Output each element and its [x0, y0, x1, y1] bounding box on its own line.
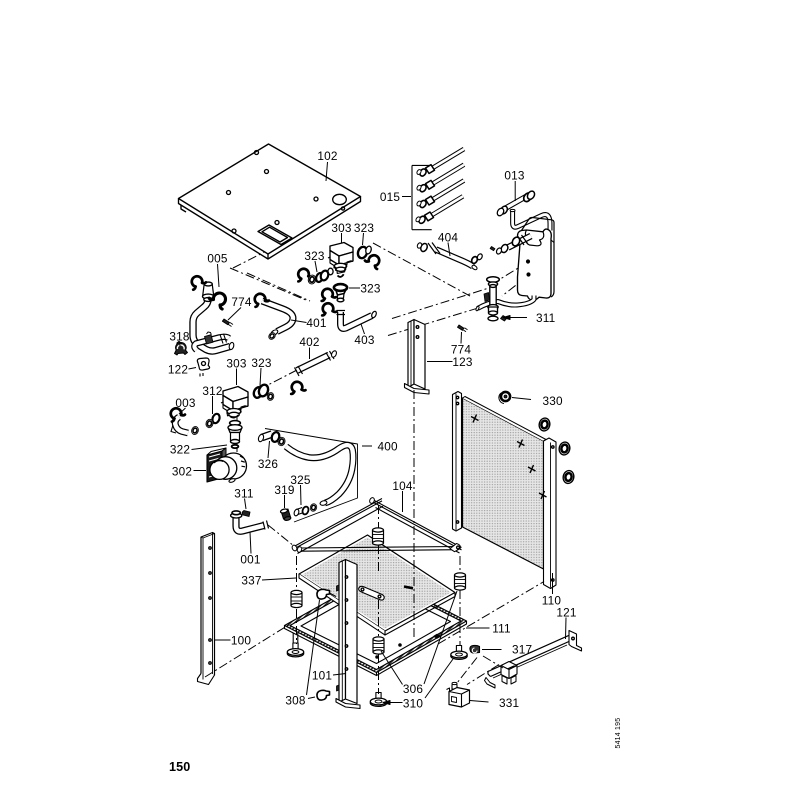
- svg-text:013: 013: [504, 169, 525, 183]
- svg-text:403: 403: [354, 333, 375, 347]
- svg-text:303: 303: [331, 221, 352, 235]
- svg-text:323: 323: [360, 282, 381, 296]
- svg-text:318: 318: [169, 330, 190, 344]
- svg-text:774: 774: [231, 295, 252, 309]
- svg-text:322: 322: [170, 443, 190, 457]
- svg-text:311: 311: [234, 487, 253, 501]
- svg-text:302: 302: [172, 465, 192, 479]
- svg-text:323: 323: [251, 356, 272, 370]
- svg-text:325: 325: [290, 473, 311, 487]
- svg-text:330: 330: [543, 394, 564, 408]
- svg-text:402: 402: [299, 335, 319, 349]
- svg-text:111: 111: [492, 622, 511, 636]
- svg-text:015: 015: [380, 190, 401, 204]
- svg-text:400: 400: [378, 440, 399, 454]
- svg-text:323: 323: [354, 221, 375, 235]
- svg-text:005: 005: [207, 252, 228, 266]
- svg-text:122: 122: [168, 363, 188, 377]
- svg-text:003: 003: [175, 396, 196, 410]
- svg-text:5414 195: 5414 195: [615, 718, 622, 749]
- svg-text:100: 100: [231, 634, 252, 648]
- svg-text:306: 306: [403, 682, 424, 696]
- svg-text:310: 310: [403, 697, 424, 711]
- svg-text:401: 401: [306, 316, 326, 330]
- svg-text:312: 312: [202, 384, 222, 398]
- svg-text:311: 311: [536, 311, 555, 325]
- svg-text:101: 101: [312, 669, 332, 683]
- svg-text:001: 001: [240, 553, 260, 567]
- svg-text:121: 121: [556, 606, 576, 620]
- svg-text:303: 303: [226, 357, 247, 371]
- svg-text:331: 331: [499, 696, 519, 710]
- svg-text:102: 102: [317, 149, 337, 163]
- svg-text:104: 104: [392, 479, 413, 493]
- svg-text:150: 150: [169, 760, 190, 774]
- svg-text:323: 323: [304, 249, 325, 263]
- svg-text:404: 404: [438, 231, 459, 245]
- svg-text:123: 123: [452, 355, 473, 369]
- svg-text:337: 337: [241, 574, 261, 588]
- svg-text:308: 308: [285, 694, 306, 708]
- svg-text:317: 317: [512, 643, 532, 657]
- svg-text:326: 326: [258, 457, 279, 471]
